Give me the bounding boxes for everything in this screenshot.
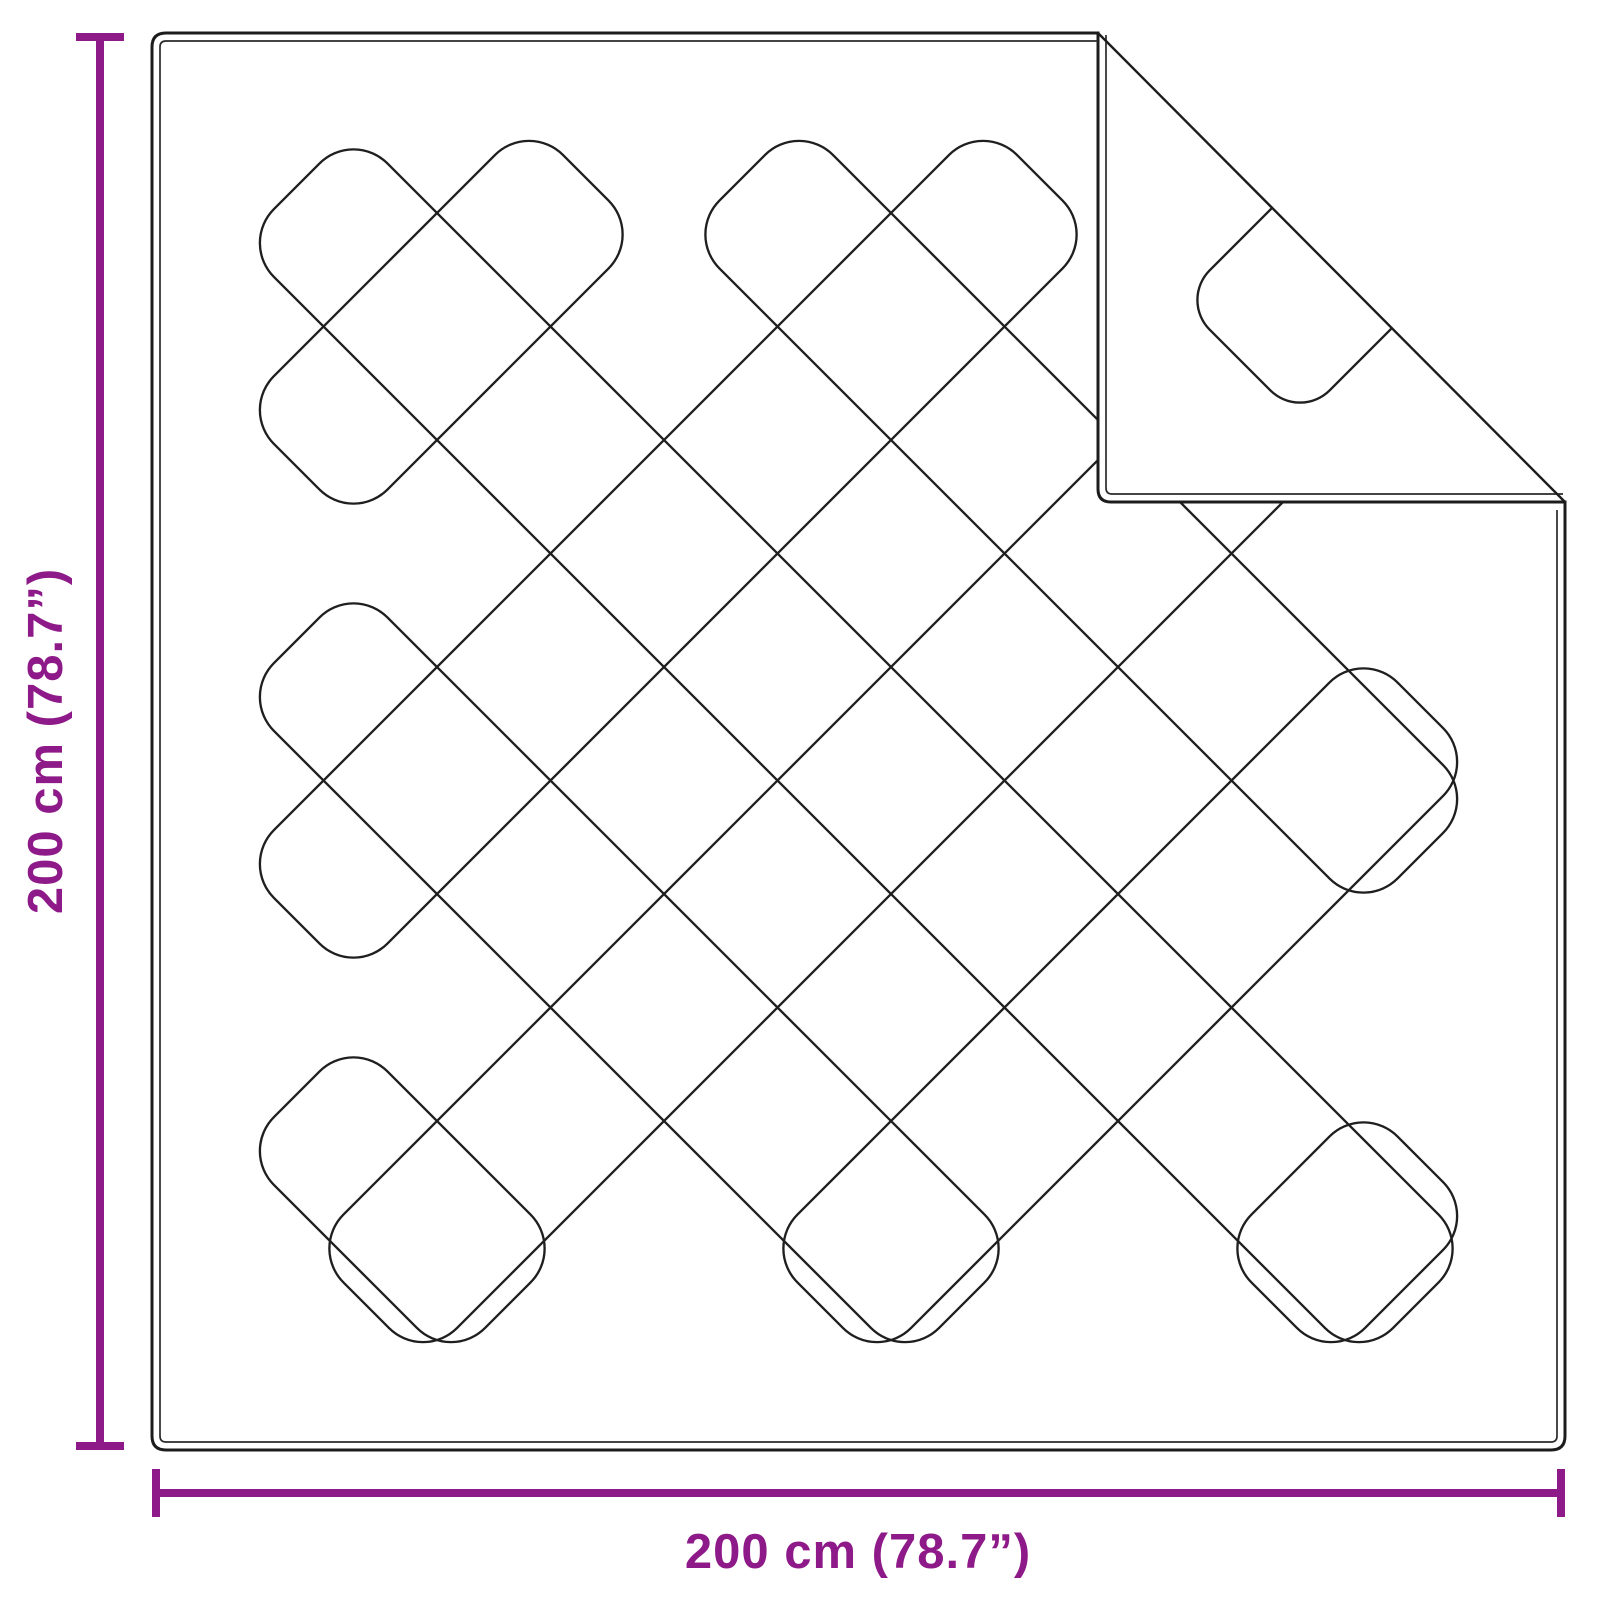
quilt-capsule xyxy=(240,121,1097,978)
fold-crease-line xyxy=(1098,33,1565,502)
width-dimension-line xyxy=(152,1469,1565,1517)
height-dimension-label: 200 cm (78.7”) xyxy=(19,568,73,914)
width-dimension-label: 200 cm (78.7”) xyxy=(685,1525,1031,1579)
quilt-capsule xyxy=(1140,121,1478,459)
quilt-capsule xyxy=(310,195,1478,1363)
quilt-pattern xyxy=(240,121,1477,1362)
quilt-capsule xyxy=(240,1038,565,1363)
diagram-canvas: 200 cm (78.7”) 200 cm (78.7”) xyxy=(0,0,1600,1600)
flap-quilt-diamond xyxy=(1180,180,1420,420)
fold-flap-pattern xyxy=(1180,180,1420,420)
quilt-capsule xyxy=(686,121,1478,913)
blanket-hem-line xyxy=(160,41,1557,1442)
flap-hem-line xyxy=(1106,35,1563,494)
height-dimension-line xyxy=(76,33,124,1450)
quilt-capsule xyxy=(764,649,1478,1363)
blanket-dimension-diagram: 200 cm (78.7”) 200 cm (78.7”) xyxy=(0,0,1600,1600)
quilt-capsule xyxy=(1218,1103,1478,1363)
